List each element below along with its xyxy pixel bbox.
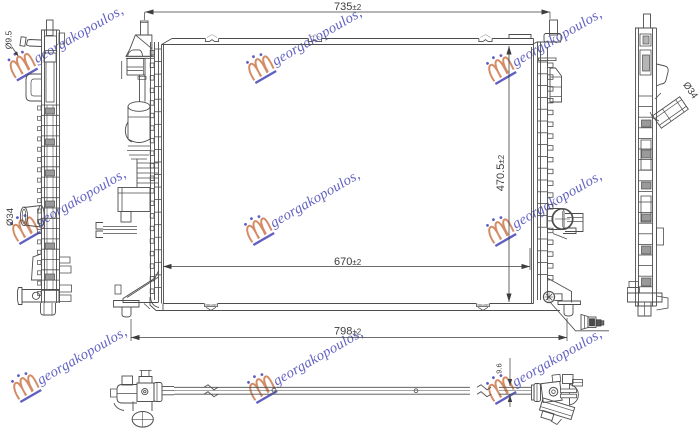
svg-text:470.5±2: 470.5±2 [495, 154, 507, 191]
svg-text:Ø9.5: Ø9.5 [4, 31, 14, 50]
svg-text:Ø34: Ø34 [5, 208, 16, 226]
svg-text:670±2: 670±2 [334, 256, 362, 268]
svg-text:9.6: 9.6 [495, 363, 504, 373]
svg-text:798±2: 798±2 [334, 326, 362, 338]
svg-text:735±2: 735±2 [334, 1, 362, 13]
